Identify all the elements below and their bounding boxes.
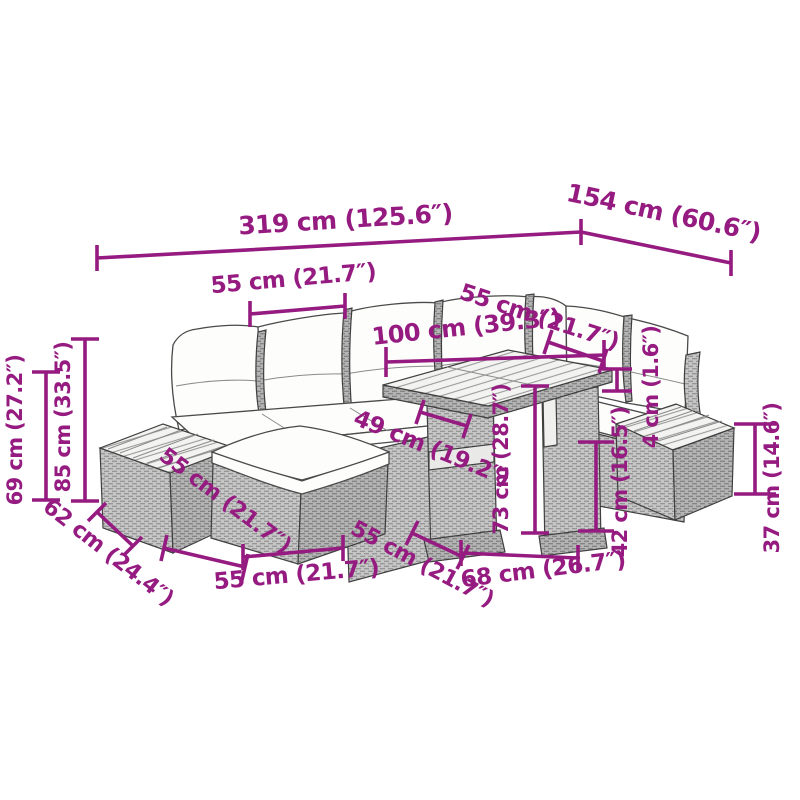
dim-37-label: 37 cm (14.6″)	[760, 403, 784, 554]
product-dimension-diagram: 319 cm (125.6″) 154 cm (60.6″) 55 cm (21…	[0, 0, 800, 800]
dim-73-label: 73 cm (28.7″)	[489, 384, 513, 535]
diagram-canvas: 319 cm (125.6″) 154 cm (60.6″) 55 cm (21…	[0, 0, 800, 800]
dim-154-line	[581, 232, 731, 276]
dim-55-upper-left-label: 55 cm (21.7″)	[210, 259, 378, 299]
frame-post-5	[623, 315, 632, 402]
dim-85-line	[71, 339, 99, 501]
footstool-right	[616, 404, 734, 520]
dim-42-label: 42 cm (16.5″)	[608, 407, 632, 558]
dim-69-label: 69 cm (27.2″)	[3, 355, 27, 506]
dim-319-label: 319 cm (125.6″)	[238, 198, 454, 240]
dim-85-label: 85 cm (33.5″)	[51, 342, 75, 493]
dim-4-label: 4 cm (1.6″)	[639, 326, 663, 449]
back-cushion-2	[258, 313, 350, 416]
dim-154-label: 154 cm (60.6″)	[564, 178, 763, 247]
